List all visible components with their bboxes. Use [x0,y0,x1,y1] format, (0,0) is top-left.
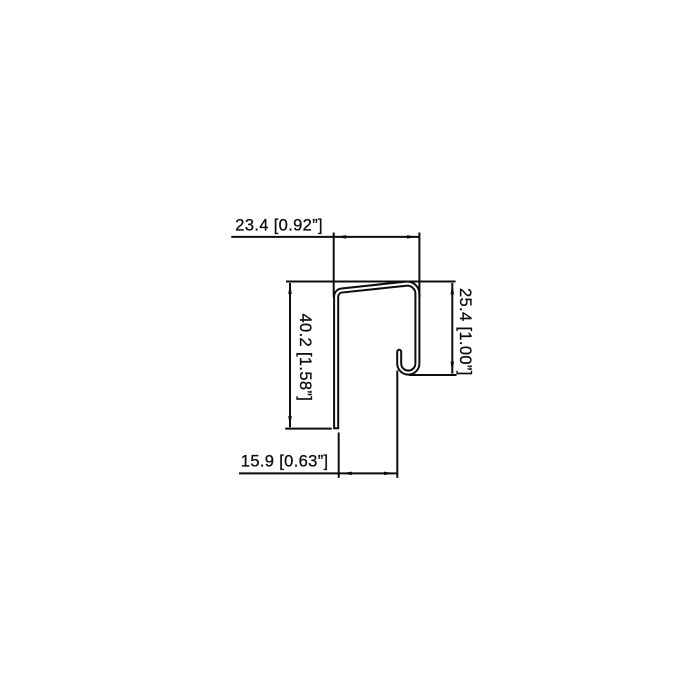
svg-text:23.4 [0.92”]: 23.4 [0.92”] [235,217,323,235]
svg-text:40.2 [1.58”]: 40.2 [1.58”] [296,314,314,402]
svg-text:25.4 [1.00”]: 25.4 [1.00”] [456,288,474,376]
svg-text:15.9 [0.63”]: 15.9 [0.63”] [241,453,329,471]
